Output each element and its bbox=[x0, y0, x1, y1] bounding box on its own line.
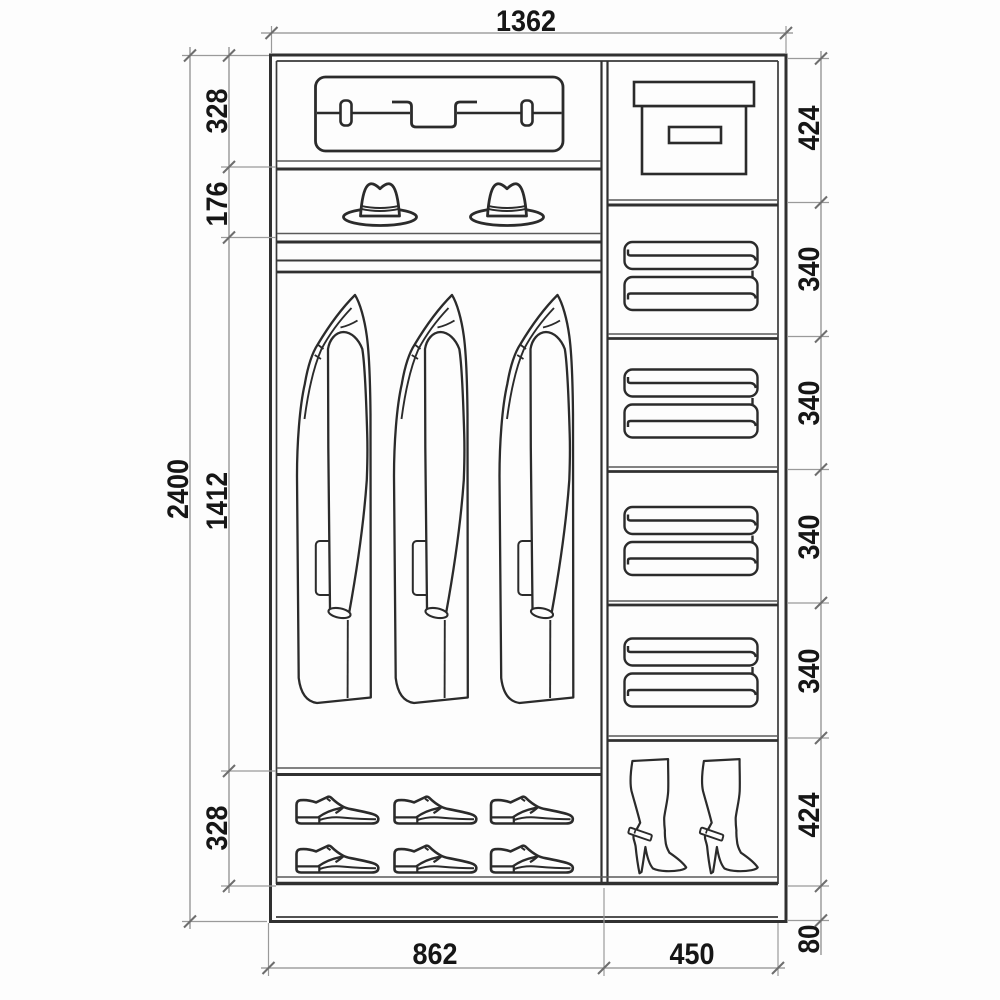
svg-text:328: 328 bbox=[201, 89, 234, 134]
svg-text:2400: 2400 bbox=[162, 459, 195, 519]
svg-text:340: 340 bbox=[793, 515, 826, 560]
svg-text:176: 176 bbox=[201, 182, 234, 227]
svg-text:450: 450 bbox=[670, 938, 715, 971]
svg-text:1362: 1362 bbox=[496, 5, 556, 38]
svg-text:340: 340 bbox=[793, 649, 826, 694]
svg-text:328: 328 bbox=[201, 806, 234, 851]
svg-text:424: 424 bbox=[793, 792, 826, 837]
svg-text:862: 862 bbox=[413, 938, 458, 971]
svg-text:340: 340 bbox=[793, 247, 826, 292]
svg-text:424: 424 bbox=[793, 105, 826, 150]
svg-text:80: 80 bbox=[793, 925, 826, 954]
svg-text:340: 340 bbox=[793, 381, 826, 426]
svg-text:1412: 1412 bbox=[201, 472, 234, 530]
